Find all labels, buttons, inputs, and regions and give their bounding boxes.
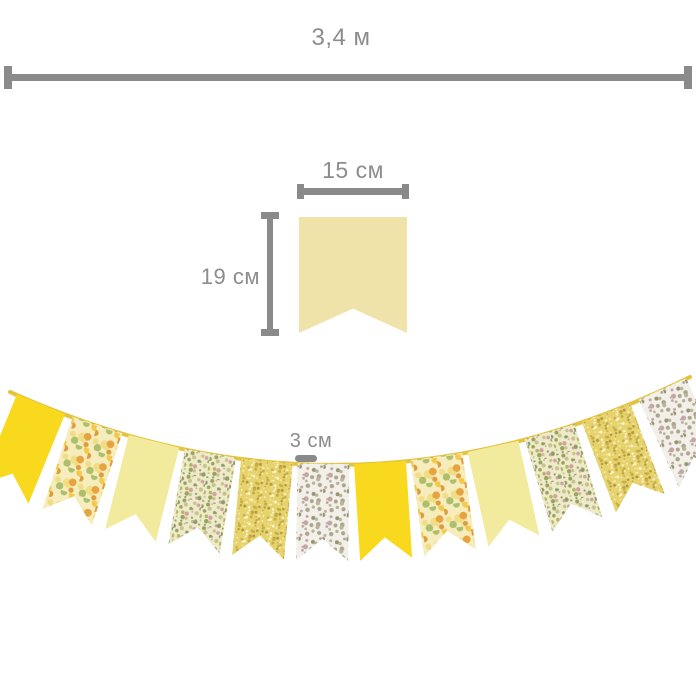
flag-height-cap-top	[261, 212, 279, 219]
flag-gap-bar	[295, 455, 317, 462]
garland-flag-3	[105, 435, 179, 542]
flag-width-cap-right	[402, 184, 409, 199]
total-length-cap-left	[4, 66, 12, 89]
garland-flag-4	[168, 449, 236, 553]
flag-width-dimension-line	[301, 188, 405, 195]
garland-flag-8	[411, 453, 476, 556]
garland-flag-2	[43, 417, 123, 525]
garland-flag-12	[639, 378, 696, 488]
flag-gap-label: 3 см	[281, 430, 341, 453]
flag-width-cap-left	[297, 184, 304, 199]
garland-string	[10, 377, 690, 465]
flag-width-label: 15 см	[300, 157, 406, 184]
garland	[0, 0, 696, 695]
garland-flag-1	[0, 394, 65, 503]
flag-height-cap-bottom	[261, 329, 279, 336]
garland-flag-11	[582, 403, 665, 512]
flag-height-label: 19 см	[194, 264, 260, 290]
single-flag	[299, 217, 407, 333]
total-length-dimension-line	[8, 74, 688, 81]
flag-height-dimension-line	[267, 219, 273, 329]
garland-flag-9	[468, 441, 540, 547]
total-length-label: 3,4 м	[0, 24, 682, 52]
garland-flag-10	[525, 424, 603, 532]
garland-flag-6	[296, 463, 349, 561]
garland-flag-7	[354, 461, 412, 561]
garland-flag-5	[232, 458, 293, 559]
total-length-cap-right	[684, 66, 692, 89]
product-dimension-diagram: 3,4 м 15 см 19 см 3 см	[0, 0, 696, 695]
